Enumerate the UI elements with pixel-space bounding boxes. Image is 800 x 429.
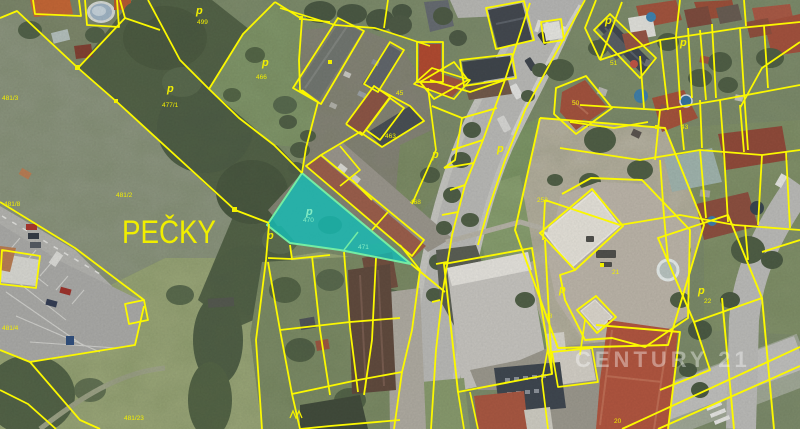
svg-text:p: p [558,284,566,296]
svg-text:21: 21 [612,269,620,276]
svg-text:468: 468 [410,199,421,206]
svg-text:51: 51 [610,60,618,67]
svg-text:470: 470 [303,217,314,224]
svg-text:48: 48 [545,313,553,320]
svg-text:p: p [697,285,705,297]
svg-text:CENTURY 21: CENTURY 21 [575,347,751,372]
svg-text:43: 43 [681,124,689,131]
svg-text:p: p [496,143,504,155]
svg-text:481/4: 481/4 [2,325,19,332]
svg-text:477/1: 477/1 [162,102,179,109]
svg-text:481/3: 481/3 [2,95,19,102]
svg-text:p: p [166,83,174,95]
svg-text:p: p [266,230,274,242]
svg-text:466: 466 [256,74,267,81]
svg-text:p: p [604,15,612,27]
svg-text:p: p [679,37,687,49]
svg-text:PEČKY: PEČKY [122,214,216,250]
svg-text:p: p [431,149,439,161]
svg-text:463: 463 [385,133,396,140]
svg-text:471: 471 [358,244,369,251]
svg-text:50: 50 [572,100,580,107]
svg-text:481/23: 481/23 [124,415,144,422]
svg-text:45: 45 [396,90,404,97]
svg-text:481/2: 481/2 [116,192,133,199]
svg-text:p: p [261,57,269,69]
svg-text:p: p [195,5,203,17]
svg-text:22: 22 [704,298,712,305]
svg-text:252: 252 [537,197,548,204]
svg-text:20: 20 [614,418,622,425]
svg-text:499: 499 [197,19,208,26]
svg-text:481/8: 481/8 [4,201,21,208]
